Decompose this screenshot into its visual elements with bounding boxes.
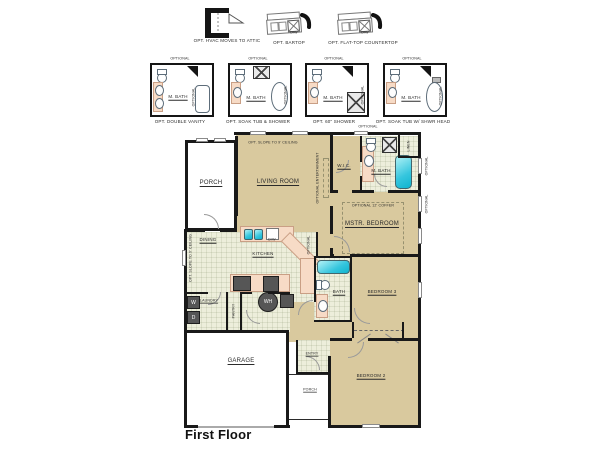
optional-note: OPTIONAL [192,88,196,107]
kitchen-sink-icon [254,229,263,240]
sink-icon [388,87,397,98]
water-heater-icon: WH [258,292,278,312]
sink-icon [155,85,164,96]
porch-bottom-floor [288,374,330,420]
sink-icon [233,87,242,98]
floor-plan-sheet: OPT. HVAC MOVES TO ATTIC D/W OPT. BARTOP… [0,0,600,450]
tub-icon [195,85,210,113]
wall-segment [240,292,242,332]
range-icon [233,276,251,291]
door-swing-icon [342,66,353,77]
coffer-ceiling-outline [342,202,404,254]
sheet-title: First Floor [185,427,251,442]
bath-sink-icon [318,300,328,312]
flat-top-counter-glyph [337,11,383,39]
bartop-dw-label: D/W [290,31,297,35]
dryer-icon: D [187,311,200,324]
water-heater-label: WH [264,299,272,305]
room-label: M. BATH [323,96,342,101]
sink-icon [155,98,164,109]
washer-icon: W [187,296,200,309]
wall-segment [350,256,352,322]
mbath-shower-icon [382,137,397,153]
wall-segment [296,340,298,374]
option-hvac-label: OPT. HVAC MOVES TO ATTIC [194,39,261,44]
wall-segment [360,176,362,190]
wall-segment [360,136,362,162]
bath-toilet-icon [320,280,330,290]
wall-segment [418,132,421,428]
entertainment-note: OPTIONAL ENTERTAINMENT [316,152,320,203]
wall-segment [184,292,208,294]
option-card-double-vanity: OPTIONAL M. BATH [150,63,214,117]
mbath-sink-icon [364,155,374,167]
window [418,282,422,298]
wall-segment [184,330,289,333]
dishwasher-label: D/W [268,238,275,242]
option-card-soak-tub-shwr-head: OPTIONAL M. BATH [383,63,447,117]
master-bedroom-label: MSTR. BEDROOM [345,221,399,227]
wall-segment [296,372,330,374]
hvac-unit-icon [280,294,294,308]
kitchen-sink-icon [244,229,253,240]
option-soak-tub-head-label: OPT. SOAK TUB W/ SHWR HEAD [376,120,451,125]
slope-ceiling-note: OPT. SLOPE TO 9' CEILING [248,141,297,145]
wall-segment [314,256,352,258]
optional-note: OPTIONAL [307,236,311,255]
window [182,250,186,266]
sink-icon [310,87,319,98]
option-soak-tub-shower-label: OPT. SOAK TUB & SHOWER [226,120,290,125]
flattop-dw-label: D/W [361,31,368,35]
mbath-label: M. BATH [371,169,390,174]
optional-note: OPTIONAL [170,57,189,61]
garage-label: GARAGE [228,358,255,364]
window [418,228,422,244]
optional-note: OPTIONAL [425,157,429,176]
window [362,424,380,428]
wall-segment [184,229,205,232]
optional-note: OPTIONAL [439,87,443,106]
wall-segment [352,322,354,338]
pantry-label: PANTRY [232,304,236,319]
bedroom3-label: BEDROOM 3 [368,290,397,295]
wall-segment [286,332,289,428]
mbath-toilet-icon [366,142,376,152]
porch-top-label: PORCH [200,180,223,186]
bedroom2-label: BEDROOM 2 [357,374,386,379]
room-label: M. BATH [168,95,187,100]
door-swing-icon [187,66,198,77]
wall-segment [330,134,333,192]
laundry-label: LAUNDRY [200,299,218,303]
closet-rod [354,330,404,331]
wall-segment [220,229,237,232]
optional-note: OPTIONAL [248,57,267,61]
slope-ceiling-note: OPT. SLOPE TO 9' CEILING [189,234,193,282]
mbath-tub-icon [395,155,412,189]
wall-segment [352,190,374,193]
refrigerator-icon [263,276,279,292]
wall-segment [316,232,318,256]
option-double-vanity-label: OPT. DOUBLE VANITY [155,120,206,125]
option-flattop-label: OPT. FLAT-TOP COUNTERTOP [328,41,398,46]
bath-tub-icon [317,260,350,274]
optional-note: OPTIONAL [425,195,429,214]
optional-note: OPTIONAL [284,86,288,105]
optional-note: OPTIONAL [361,86,365,105]
window [250,131,266,135]
coffer-note: OPTIONAL 12' COFFER [352,204,394,208]
window [292,131,308,135]
dryer-label: D [192,315,196,321]
room-label: M. BATH [246,96,265,101]
wall-segment [330,190,338,193]
wall-segment [314,320,352,322]
linen-label: LINEN [407,140,411,151]
wall-segment [398,156,420,158]
wall-segment [226,292,228,332]
optional-note: OPTIONAL [324,57,343,61]
bedroom3-floor [352,256,418,340]
option-card-soak-tub-shower: OPTIONAL M. BATH [228,63,292,117]
option-60-shower-label: OPT. 60" SHOWER [313,120,355,125]
wic-label: W.I.C. [337,164,350,169]
wall-segment [242,292,252,294]
washer-label: W [191,300,196,306]
window [354,131,368,135]
option-bartop-label: OPT. BARTOP [273,41,305,46]
wall-segment [314,256,316,302]
wall-segment [398,134,400,158]
entertainment-niche-outline [323,158,329,198]
wall-segment [184,300,187,428]
wall-segment [330,206,333,234]
wall-segment [268,292,290,294]
room-label: M. BATH [401,96,420,101]
window [418,196,422,212]
wall-segment [402,322,404,338]
wall-segment [330,338,352,341]
wall-segment [328,356,331,428]
shower-icon [253,66,270,79]
entry-label: ENTRY [306,352,319,356]
hvac-closet-glyph [205,8,245,38]
optional-note: OPTIONAL [358,125,377,129]
living-room-label: LIVING ROOM [257,179,299,185]
window [196,138,208,142]
bartop-glyph [266,11,312,39]
wall-segment [388,190,421,193]
dining-label: DINING [200,238,217,243]
option-card-60-shower: OPTIONAL M. BATH [305,63,369,117]
bath-label: BATH [333,290,345,295]
bedroom2-floor [330,340,418,425]
wall-segment [350,254,421,257]
porch-bottom-label: PORCH [303,388,317,392]
wall-segment [235,136,238,216]
kitchen-label: KITCHEN [252,252,273,257]
wall-segment [368,338,421,341]
window [418,158,422,174]
window [214,138,226,142]
door-swing-icon [420,66,431,77]
optional-note: OPTIONAL [402,57,421,61]
